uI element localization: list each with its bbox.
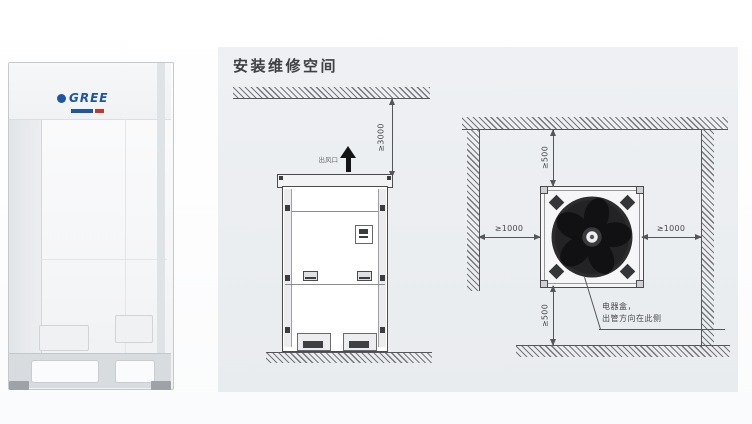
front-view-body — [282, 186, 388, 352]
left-clearance-dimension — [479, 237, 540, 238]
brand-logo-text: GREE — [69, 91, 108, 105]
unit-foot-left — [9, 381, 29, 390]
wall-hatch-left — [467, 129, 480, 291]
note-line2: 出管方向在此侧 — [602, 313, 662, 324]
right-clearance-dimension — [642, 237, 701, 238]
sub-brand-mark — [71, 109, 104, 113]
back-clearance-dimension — [553, 130, 554, 186]
unit-base-frame — [9, 353, 171, 388]
nameplate — [355, 225, 373, 244]
nameplate-glyph — [359, 229, 368, 234]
column-nub — [380, 205, 385, 211]
corner-screw — [636, 186, 644, 194]
sub-brand-blue-bar — [71, 109, 93, 113]
front-view-column-left — [284, 189, 292, 347]
foot-left — [297, 333, 331, 351]
mid-panel-divider-line — [285, 284, 385, 285]
column-nub — [285, 275, 290, 281]
brand-logo-icon — [57, 94, 66, 103]
corner-screw — [540, 186, 548, 194]
cap-nub-right — [387, 176, 391, 180]
forklift-slot-right — [115, 360, 155, 383]
air-outlet-label: 出风口 — [298, 154, 338, 164]
right-clearance-label: ≥1000 — [643, 224, 699, 233]
note-underline — [599, 329, 725, 330]
handle-left — [303, 271, 318, 281]
column-nub — [380, 275, 385, 281]
ground-hatch-front-view — [266, 352, 432, 363]
fan-icon — [548, 193, 636, 281]
left-clearance-label: ≥1000 — [481, 224, 537, 233]
corner-screw — [540, 280, 548, 288]
unit-foot-right — [151, 381, 171, 390]
column-nub — [285, 205, 290, 211]
valve-cover-left — [39, 325, 89, 351]
unit-cabinet: GREE — [8, 62, 174, 390]
back-clearance-label: ≥500 — [541, 138, 550, 178]
column-nub — [380, 327, 385, 333]
foot-right — [343, 333, 377, 351]
wall-hatch-top — [462, 117, 728, 130]
unit-corner-post — [157, 63, 165, 387]
panel-title: 安装维修空间 — [233, 55, 338, 76]
valve-cover-right — [115, 315, 153, 343]
ceiling-hatch — [233, 87, 430, 99]
outdoor-unit-photo: GREE — [0, 55, 196, 398]
column-nub — [285, 327, 290, 333]
handle-right — [357, 271, 372, 281]
air-outlet-arrow-stem — [346, 157, 351, 172]
note-line1: 电器盒， — [602, 301, 636, 312]
screenshot-root: GREE 安装维修空间 ≥3000 出风口 — [0, 0, 752, 424]
wall-hatch-right — [701, 129, 714, 347]
front-view-column-right — [378, 189, 386, 347]
grille-divider-line — [292, 211, 378, 212]
unit-top-view — [540, 186, 644, 288]
sub-brand-red-bar — [95, 109, 104, 113]
cap-nub-left — [279, 176, 283, 180]
front-clearance-dimension — [553, 286, 554, 345]
brand-logo: GREE — [57, 91, 108, 105]
nameplate-glyph — [359, 236, 368, 238]
corner-screw — [636, 280, 644, 288]
ground-hatch-top-view — [516, 345, 730, 357]
front-clearance-label: ≥500 — [541, 296, 550, 336]
forklift-slot-left — [31, 360, 99, 383]
top-clearance-label: ≥3000 — [377, 118, 386, 158]
top-clearance-dimension — [392, 99, 393, 177]
panel-seam-horizontal — [41, 259, 167, 260]
unit-front-view — [277, 174, 393, 352]
